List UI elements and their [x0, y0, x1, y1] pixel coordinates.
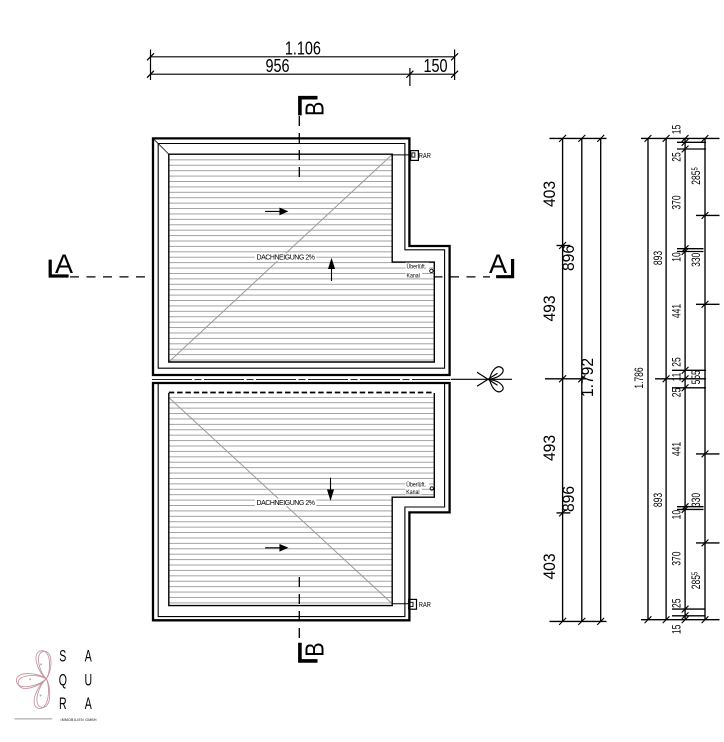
svg-text:IMMOBILIEN GMBH: IMMOBILIEN GMBH	[61, 718, 98, 722]
svg-text:330: 330	[691, 493, 704, 508]
svg-text:A: A	[55, 249, 73, 279]
svg-text:B: B	[301, 102, 330, 116]
svg-text:Überlüft.: Überlüft.	[406, 481, 426, 489]
svg-text:S: S	[59, 646, 66, 665]
svg-text:493: 493	[541, 435, 559, 461]
svg-text:370: 370	[671, 551, 684, 566]
svg-text:1.786: 1.786	[634, 367, 647, 389]
svg-text:956: 956	[265, 55, 289, 76]
svg-text:150: 150	[423, 55, 447, 76]
svg-text:15: 15	[671, 624, 684, 634]
svg-text:10: 10	[671, 252, 684, 262]
svg-text:25: 25	[671, 152, 684, 162]
svg-text:A: A	[85, 646, 92, 665]
svg-text:Q: Q	[59, 670, 67, 689]
svg-text:25: 25	[671, 598, 684, 608]
svg-text:Kanal: Kanal	[407, 273, 420, 279]
svg-text:441: 441	[671, 304, 684, 319]
svg-text:893: 893	[653, 493, 666, 508]
svg-text:1.792: 1.792	[578, 358, 596, 397]
svg-text:493: 493	[541, 295, 559, 321]
svg-text:2855: 2855	[691, 167, 704, 185]
svg-text:15: 15	[671, 124, 684, 134]
svg-text:25: 25	[671, 357, 684, 367]
svg-text:A: A	[85, 693, 92, 712]
svg-text:896: 896	[560, 245, 578, 271]
svg-text:370: 370	[671, 195, 684, 210]
svg-text:B: B	[301, 642, 330, 656]
svg-text:403: 403	[541, 181, 559, 207]
svg-text:RAR: RAR	[419, 601, 431, 609]
svg-text:DACHNEIGUNG 2%: DACHNEIGUNG 2%	[257, 255, 316, 262]
svg-text:RAR: RAR	[419, 153, 431, 161]
svg-text:2855: 2855	[691, 572, 704, 590]
svg-text:893: 893	[653, 251, 666, 266]
svg-text:330: 330	[691, 252, 704, 267]
svg-text:441: 441	[671, 442, 684, 457]
svg-text:Kanal: Kanal	[406, 489, 419, 495]
svg-text:Überlüft.: Überlüft.	[407, 263, 427, 271]
svg-text:DACHNEIGUNG 2%: DACHNEIGUNG 2%	[257, 500, 316, 507]
svg-text:U: U	[84, 670, 92, 689]
svg-text:11: 11	[671, 372, 684, 381]
svg-text:25: 25	[671, 387, 684, 397]
svg-text:A: A	[489, 249, 507, 279]
svg-text:403: 403	[541, 553, 559, 579]
svg-text:R: R	[59, 693, 67, 712]
svg-text:1.106: 1.106	[285, 38, 321, 59]
svg-text:896: 896	[560, 486, 578, 512]
svg-text:555: 555	[691, 370, 704, 385]
svg-text:10: 10	[671, 510, 684, 520]
